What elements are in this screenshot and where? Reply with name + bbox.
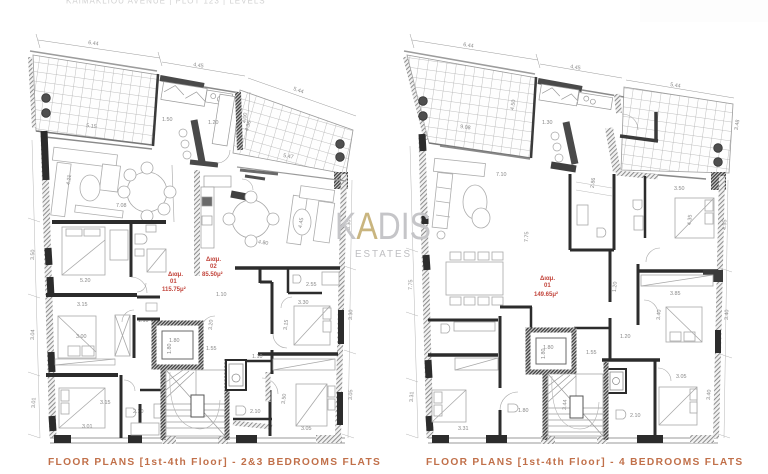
svg-text:1.10: 1.10 (252, 354, 263, 360)
svg-text:FLOOR PLANS [1st-4th Floor] -: FLOOR PLANS [1st-4th Floor] - 4 BEDROOMS… (426, 457, 743, 468)
svg-text:5.15: 5.15 (86, 123, 97, 130)
svg-text:3.05: 3.05 (348, 389, 355, 400)
svg-text:3.05: 3.05 (676, 374, 687, 380)
svg-text:3.00: 3.00 (76, 334, 87, 340)
svg-text:7.75: 7.75 (524, 231, 530, 242)
svg-text:3.40: 3.40 (724, 309, 731, 320)
svg-text:Διαμ.: Διαμ. (168, 272, 183, 278)
svg-text:2.10: 2.10 (133, 409, 144, 415)
svg-text:KAIMAKLIOU AVENUE | PLOT 123 |: KAIMAKLIOU AVENUE | PLOT 123 | LEVELS (66, 0, 266, 6)
svg-text:2.55: 2.55 (306, 282, 317, 288)
svg-text:3.31: 3.31 (458, 426, 469, 432)
svg-text:3.31: 3.31 (409, 391, 416, 402)
svg-text:1.20: 1.20 (208, 120, 219, 126)
svg-text:3.01: 3.01 (82, 424, 93, 430)
svg-text:1.55: 1.55 (586, 350, 597, 356)
svg-text:3.85: 3.85 (670, 291, 681, 297)
svg-text:3.20: 3.20 (208, 319, 215, 330)
svg-text:2.10: 2.10 (630, 413, 641, 419)
svg-text:1.55: 1.55 (206, 346, 217, 352)
svg-text:3.15: 3.15 (100, 400, 111, 406)
svg-text:85.50μ²: 85.50μ² (202, 271, 223, 278)
svg-text:3.05: 3.05 (301, 426, 312, 432)
svg-text:115.75μ²: 115.75μ² (162, 286, 186, 293)
svg-text:5.20: 5.20 (80, 278, 91, 284)
svg-text:7.75: 7.75 (408, 279, 415, 290)
svg-text:7.08: 7.08 (116, 203, 127, 209)
svg-text:3.44: 3.44 (562, 399, 569, 410)
svg-text:Διαμ.: Διαμ. (540, 276, 555, 282)
svg-text:1.10: 1.10 (216, 292, 227, 298)
svg-text:3.01: 3.01 (31, 397, 38, 408)
svg-text:KADIS: KADIS (335, 206, 431, 248)
svg-text:1.80: 1.80 (518, 408, 529, 414)
svg-text:4.35: 4.35 (687, 214, 694, 225)
svg-text:4.55: 4.55 (722, 219, 729, 230)
svg-text:3.50: 3.50 (30, 249, 37, 260)
svg-text:2.10: 2.10 (250, 409, 261, 415)
svg-text:01: 01 (170, 279, 177, 285)
svg-text:FLOOR PLANS [1st-4th Floor] -: FLOOR PLANS [1st-4th Floor] - 2&3 BEDROO… (48, 457, 381, 468)
svg-text:7.10: 7.10 (496, 172, 507, 178)
svg-text:149.65μ²: 149.65μ² (534, 291, 558, 298)
svg-text:Διαμ.: Διαμ. (206, 257, 221, 263)
svg-text:01: 01 (544, 283, 551, 289)
svg-text:3.40: 3.40 (656, 309, 663, 320)
svg-text:1.20: 1.20 (620, 334, 631, 340)
svg-text:3.30: 3.30 (348, 309, 355, 320)
svg-text:3.30: 3.30 (298, 300, 309, 306)
svg-text:3.40: 3.40 (706, 389, 713, 400)
svg-text:1.30: 1.30 (542, 120, 553, 126)
svg-text:1.80: 1.80 (541, 349, 547, 360)
svg-text:3.50: 3.50 (674, 186, 685, 192)
svg-text:02: 02 (210, 264, 217, 270)
svg-text:1.80: 1.80 (169, 338, 180, 344)
svg-text:ESTATES: ESTATES (355, 249, 412, 260)
svg-text:1.50: 1.50 (162, 117, 173, 123)
svg-text:3.15: 3.15 (77, 302, 88, 308)
svg-text:1.80: 1.80 (167, 344, 173, 355)
svg-text:1.20: 1.20 (612, 281, 619, 292)
svg-text:3.04: 3.04 (30, 329, 37, 340)
